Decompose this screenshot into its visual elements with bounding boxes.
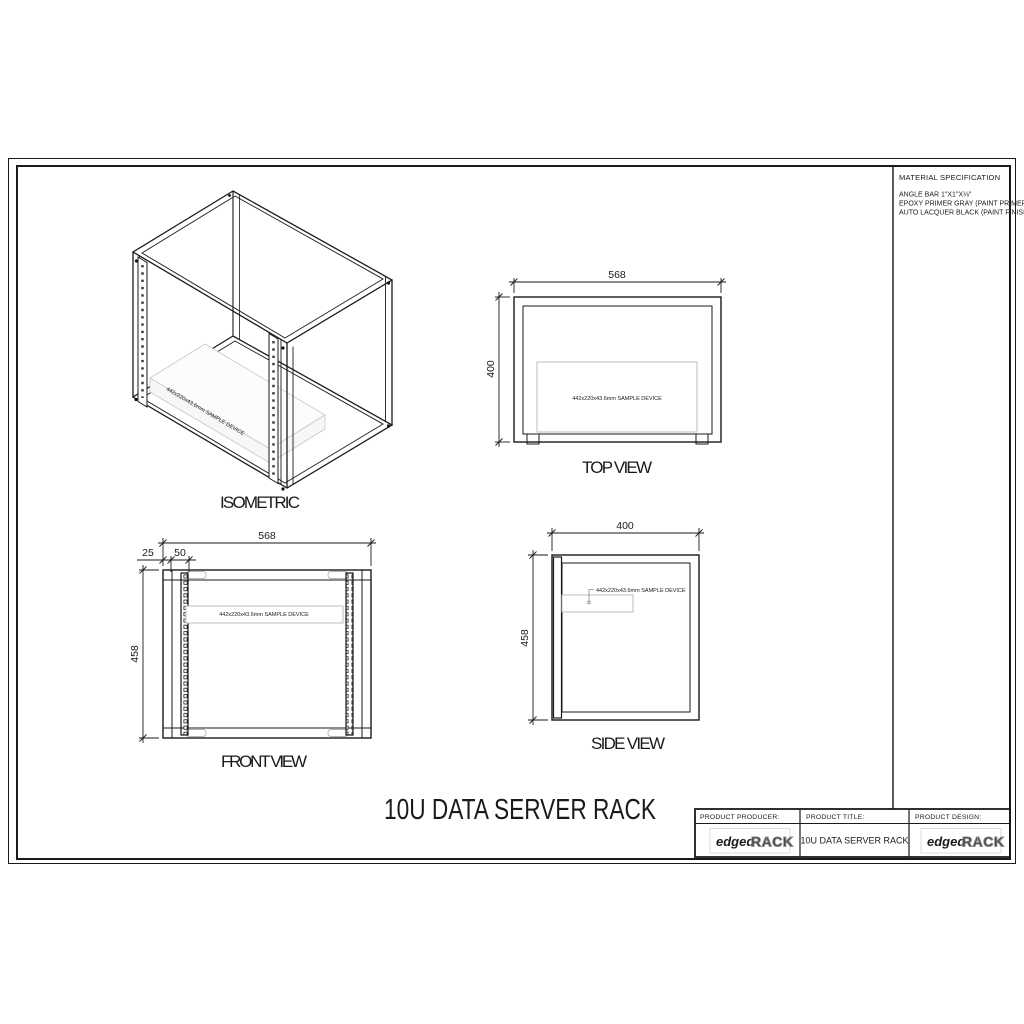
top-view-dim-width-text: 568 [608, 269, 626, 281]
side-view-inner-frame [562, 563, 690, 712]
isometric-view: 442x220x43.6mm SAMPLE DEVICE [133, 191, 392, 512]
front-view-right-rail [346, 573, 353, 735]
material-spec-line: AUTO LACQUER BLACK (PAINT FINISH) [899, 210, 1024, 217]
side-view-label: SIDE VIEW [591, 734, 665, 753]
sheet-inner-border [17, 166, 1010, 859]
design-label: PRODUCT DESIGN: [915, 814, 981, 821]
design-logo: edged RACK [921, 829, 1004, 854]
material-specification: MATERIAL SPECIFICATION ANGLE BAR 1"X1"X⅛… [899, 173, 1024, 217]
drawing-main-title: 10U DATA SERVER RACK [384, 794, 657, 826]
iso-top-frame-inner [142, 196, 383, 338]
sheet-border [9, 159, 1016, 864]
top-view-label: TOP VIEW [582, 458, 652, 477]
side-view-dim-height: 458 [519, 550, 548, 725]
title-block-product-title: 10U DATA SERVER RACK [800, 836, 908, 846]
drawing-sheet: MATERIAL SPECIFICATION ANGLE BAR 1"X1"X⅛… [0, 0, 1024, 1024]
design-logo-edged-text: edged [927, 834, 966, 849]
top-view-dim-width: 568 [509, 269, 726, 293]
material-spec-line: ANGLE BAR 1"X1"X⅛" [899, 192, 972, 199]
design-logo-rack-text: RACK [962, 834, 1004, 850]
top-view-dim-depth: 400 [485, 292, 510, 447]
material-spec-line: EPOXY PRIMER GRAY (PAINT PRIMER) [899, 201, 1024, 208]
front-view-dim-rail-offsets: 25 50 [137, 547, 196, 572]
front-view-left-rail [181, 573, 188, 735]
side-view-rail [554, 557, 562, 718]
side-view-sample-device [562, 595, 633, 612]
side-view-dim-height-text: 458 [519, 629, 531, 647]
front-view-outer-frame [163, 570, 371, 738]
front-view-label: FRONT VIEW [221, 752, 307, 771]
top-view-device-label: 442x220x43.6mm SAMPLE DEVICE [572, 396, 662, 402]
side-view-outer-frame [552, 555, 699, 720]
front-view: 442x220x43.6mm SAMPLE DEVICE 568 25 50 4… [129, 530, 376, 771]
producer-logo: edged RACK [710, 829, 793, 854]
sheet-outer-border [9, 159, 1016, 864]
front-view-dim-rail-offset-text: 50 [174, 547, 186, 559]
front-view-dim-width-text: 568 [258, 530, 276, 542]
cad-drawing-svg: MATERIAL SPECIFICATION ANGLE BAR 1"X1"X⅛… [0, 0, 1024, 1024]
side-view: 442x220x43.6mm SAMPLE DEVICE 400 458 SID… [519, 520, 704, 753]
front-view-dim-height: 458 [129, 565, 159, 743]
front-view-dim-edge-offset-text: 25 [142, 547, 154, 559]
side-view-device-label: 442x220x43.6mm SAMPLE DEVICE [596, 588, 686, 594]
front-view-dim-width: 568 [158, 530, 376, 566]
material-spec-title: MATERIAL SPECIFICATION [899, 173, 1000, 182]
front-view-dim-height-text: 458 [129, 645, 141, 663]
front-view-device-label: 442x220x43.6mm SAMPLE DEVICE [219, 612, 309, 618]
top-view-dim-depth-text: 400 [485, 360, 497, 378]
title-label: PRODUCT TITLE: [806, 814, 864, 821]
top-view: 442x220x43.6mm SAMPLE DEVICE 568 400 TOP… [485, 269, 726, 477]
side-view-dim-depth-text: 400 [616, 520, 634, 532]
producer-logo-edged-text: edged [716, 834, 755, 849]
front-view-slots [186, 572, 348, 737]
side-view-dim-depth: 400 [547, 520, 704, 551]
title-block: PRODUCT PRODUCER: PRODUCT TITLE: PRODUCT… [695, 809, 1010, 857]
iso-sample-device [150, 344, 325, 463]
producer-label: PRODUCT PRODUCER: [700, 814, 780, 821]
iso-top-frame [133, 191, 392, 343]
producer-logo-rack-text: RACK [751, 834, 793, 850]
isometric-view-label: ISOMETRIC [220, 493, 300, 512]
